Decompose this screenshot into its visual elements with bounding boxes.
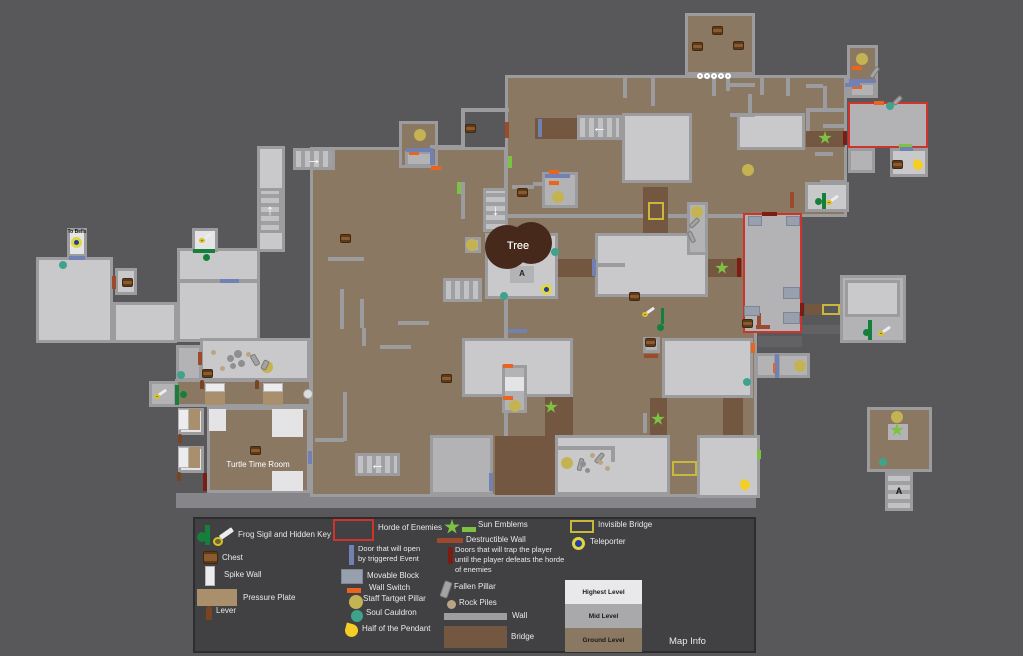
teleporter-icon (541, 284, 552, 295)
chest-icon (465, 124, 476, 133)
destructible-wall-icon (756, 325, 770, 329)
movable-block-icon (748, 216, 762, 226)
trap-door-icon (448, 547, 453, 564)
wall-segment (786, 75, 790, 96)
rock-pile-icon (227, 355, 234, 362)
map-room (758, 336, 802, 347)
wall-segment (651, 78, 655, 106)
event-door-icon (845, 83, 860, 87)
legend-label: Door that will open (358, 545, 420, 553)
legend-label: Chest (222, 554, 243, 562)
dungeon-map: →↑←↓←ATo BellsTreeAATurtle Time RoomTree… (0, 0, 1023, 656)
trap-door-icon (843, 131, 847, 145)
map-room (697, 435, 760, 498)
legend-label: Spike Wall (224, 571, 262, 579)
chest-icon (742, 319, 753, 328)
soul-cauldron-icon (59, 261, 67, 269)
wring-icon (704, 73, 710, 79)
map-room (805, 304, 822, 315)
soul-cauldron-icon (743, 378, 751, 386)
rock-pile-icon (220, 366, 225, 371)
pressure-plate-icon (189, 447, 200, 468)
wall-segment (820, 180, 845, 184)
soul-cauldron-icon (177, 371, 185, 379)
teleporter-icon (71, 237, 82, 248)
legend-label: Staff Tartget Pillar (363, 595, 426, 603)
wall-segment (823, 124, 845, 128)
sun-emblem-bar-icon (457, 182, 461, 194)
event-door-icon (538, 119, 542, 137)
trap-door-icon (800, 303, 804, 316)
map-room (209, 409, 226, 431)
wall-switch-icon (503, 364, 513, 368)
rock-pile-icon (234, 350, 242, 358)
legend-swatch (570, 520, 594, 533)
event-door-icon (430, 151, 434, 165)
event-door-icon (349, 545, 354, 565)
sun-emblem-bar-icon (757, 450, 761, 459)
staff-target-pillar-icon (466, 239, 478, 251)
wall-segment (623, 78, 627, 98)
wall-switch-icon (347, 588, 361, 593)
stairs-arrow-icon: ← (370, 457, 385, 472)
wall-segment (595, 263, 625, 267)
frog-sigil-bar-icon (661, 308, 664, 324)
soul-cauldron-icon (551, 248, 559, 256)
frog-sigil-bar-icon (822, 193, 826, 209)
staff-target-pillar-icon (349, 595, 363, 609)
legend-label: Rock Piles (459, 599, 497, 607)
rock-pile-icon (238, 360, 245, 367)
legend-level-mid: Mid Level (565, 604, 642, 628)
map-room (662, 338, 753, 398)
rock-pile-icon (447, 600, 456, 609)
stairs: ← (355, 453, 400, 476)
map-room (495, 436, 557, 495)
frog-sigil-icon (203, 254, 210, 261)
legend-label: Movable Block (367, 572, 419, 580)
key-ring (878, 331, 884, 336)
legend-label: until the player defeats the horde (455, 556, 564, 564)
wall-switch-icon (874, 101, 884, 105)
destructible-wall-icon (198, 352, 202, 365)
frog-sigil-icon (657, 324, 664, 331)
destructible-wall-icon (437, 538, 463, 543)
legend-label: by triggered Event (358, 555, 419, 563)
legend-label: Fallen Pillar (454, 583, 496, 591)
spike-wall-icon (178, 409, 189, 430)
stairs: → (293, 148, 335, 170)
event-door-icon (406, 148, 433, 152)
wall-segment (806, 112, 810, 131)
map-room (672, 461, 697, 476)
trap-door-icon (203, 473, 207, 491)
lever-icon (178, 434, 182, 443)
stairs: ↑ (258, 188, 282, 233)
map-room (505, 377, 524, 391)
key-icon (199, 233, 212, 243)
frog-sigil-bar-icon (205, 525, 210, 545)
destructible-wall-icon (505, 122, 509, 138)
wall-segment (360, 299, 364, 328)
wring-icon (725, 73, 731, 79)
wall-segment (643, 413, 647, 433)
wall-segment (815, 152, 833, 156)
map-room (430, 435, 493, 495)
wall-segment (730, 113, 755, 117)
wring-icon (711, 73, 717, 79)
key-icon (878, 326, 891, 336)
map-room (723, 398, 743, 435)
legend-label: Lever (216, 607, 236, 615)
key-ring (213, 537, 223, 546)
legend-swatch (333, 519, 374, 541)
legend-label: Teleporter (590, 538, 626, 546)
rock-pile-icon (230, 363, 236, 369)
map-room (845, 280, 900, 317)
stairs: ← (577, 115, 622, 140)
map-room (113, 302, 177, 343)
lever-icon (206, 606, 212, 620)
staff-target-pillar-icon (691, 206, 703, 218)
wall-segment (430, 145, 462, 149)
chest-icon (122, 278, 133, 287)
legend-label: of enemies (455, 566, 492, 574)
wall-segment (806, 108, 845, 112)
destructible-wall-icon (112, 276, 116, 289)
wall-switch-icon (503, 396, 513, 400)
legend-label: Destructible Wall (466, 536, 526, 544)
teleporter-icon (572, 537, 585, 550)
map-room (802, 325, 845, 334)
staff-target-pillar-icon (561, 457, 573, 469)
tree-label: Tree (507, 241, 529, 252)
key-ring (154, 394, 160, 399)
rock-pile-icon (590, 453, 595, 458)
map-room (177, 248, 260, 342)
wall-segment (823, 86, 827, 108)
chest-icon (712, 26, 723, 35)
map-room (272, 471, 303, 491)
map-label: Turtle Time Room (226, 461, 289, 469)
map-room (848, 148, 875, 173)
wall-segment (611, 450, 615, 462)
staff-target-pillar-icon (891, 411, 903, 423)
wall-segment (362, 328, 366, 346)
lever-icon (200, 380, 204, 389)
staff-target-pillar-icon (794, 360, 806, 372)
event-door-icon (508, 329, 527, 333)
destructible-wall-icon (644, 354, 658, 358)
sun-emblem-bar-icon (508, 156, 512, 168)
stairs-arrow-icon: ← (592, 120, 607, 135)
trap-door-icon (762, 212, 777, 216)
chest-icon (692, 42, 703, 51)
soul-cauldron-icon (351, 610, 363, 622)
staff-target-pillar-icon (742, 164, 754, 176)
legend-label: Soul Cauldron (366, 609, 417, 617)
soul-cauldron-icon (500, 292, 508, 300)
key-icon (826, 195, 839, 205)
wring-icon (718, 73, 724, 79)
movable-block-icon (783, 312, 800, 324)
wall-segment (380, 345, 411, 349)
sun-emblem-bar-icon (462, 527, 476, 532)
legend-label: Doors that will trap the player (455, 546, 552, 554)
event-door-icon (900, 147, 913, 151)
legend-label: Pressure Plate (243, 594, 295, 602)
stairs (443, 278, 482, 302)
stairs-arrow-icon: ↓ (492, 203, 500, 218)
event-door-icon (775, 354, 779, 378)
wall-segment (760, 75, 764, 95)
spike-wall-icon (178, 447, 189, 468)
event-door-icon (308, 451, 312, 464)
wall-segment (398, 321, 429, 325)
movable-block-icon (786, 216, 800, 226)
rock-pile-icon (211, 350, 216, 355)
rock-pile-icon (580, 461, 586, 467)
staff-target-pillar-icon (414, 129, 426, 141)
wall-segment (340, 289, 344, 329)
wall-segment (555, 446, 615, 450)
wall-switch-icon (549, 181, 559, 185)
destructible-wall-icon (790, 192, 794, 208)
chest-icon (203, 551, 218, 564)
frog-sigil-bar-icon (868, 320, 872, 340)
pressure-plate-icon (205, 391, 225, 405)
legend-label: Bridge (511, 633, 534, 641)
staff-target-pillar-icon (509, 400, 521, 412)
wall-segment (461, 108, 509, 112)
staff-target-pillar-icon (856, 53, 868, 65)
wall-switch-icon (852, 66, 862, 70)
map-room (272, 409, 303, 437)
rock-pile-icon (598, 460, 603, 465)
wring-icon (697, 73, 703, 79)
legend-label: Invisible Bridge (598, 521, 652, 529)
key-icon (213, 528, 235, 546)
wall-switch-icon (431, 166, 441, 170)
movable-block-icon (783, 287, 800, 299)
map-room (648, 202, 664, 220)
chest-icon (441, 374, 452, 383)
key-ring (642, 312, 648, 317)
map-label: A (519, 270, 525, 278)
map-room (622, 113, 692, 183)
legend-swatch (444, 613, 507, 620)
frog-sigil-icon (180, 391, 187, 398)
chest-icon (250, 446, 261, 455)
spike-wall-icon (263, 383, 283, 392)
pressure-plate-icon (189, 409, 200, 430)
pressure-plate-icon (263, 391, 283, 405)
legend-label: Frog Sigil and Hidden Key (238, 531, 331, 539)
key-ring (826, 200, 832, 205)
wall-segment (343, 392, 347, 441)
legend-label: Wall (512, 612, 527, 620)
wall-segment (730, 83, 755, 87)
legend-label: Map Info (669, 637, 706, 647)
wall-segment (748, 94, 752, 113)
map-room (545, 397, 573, 439)
chest-icon (645, 338, 656, 347)
wall-segment (533, 182, 543, 186)
frog-sigil-bar-icon (175, 385, 179, 405)
movable-block-icon (341, 569, 363, 584)
stairs-arrow-icon: ↑ (266, 203, 274, 218)
legend-level-ground: Ground Level (565, 628, 642, 652)
map-room (737, 113, 805, 150)
map-room (175, 379, 312, 407)
legend-label: Sun Emblems (478, 521, 528, 529)
event-door-icon (592, 259, 596, 276)
wall-segment (177, 279, 260, 283)
movable-block-icon (744, 306, 760, 316)
chest-icon (733, 41, 744, 50)
event-door-icon (545, 174, 570, 178)
chest-icon (202, 369, 213, 378)
rock-pile-icon (303, 389, 313, 399)
key-icon (154, 389, 167, 399)
rock-pile-icon (585, 468, 590, 473)
stairs-arrow-icon: → (307, 152, 322, 167)
map-label: To Bells (67, 230, 86, 235)
event-door-icon (220, 279, 239, 283)
event-door-icon (489, 473, 493, 491)
map-label: A (896, 488, 902, 496)
lever-icon (177, 472, 181, 481)
key-icon (642, 307, 655, 317)
legend-label: Half of the Pendant (362, 625, 431, 633)
map-room (822, 304, 840, 315)
lever-icon (255, 380, 259, 389)
frog-sigil-icon (815, 198, 822, 205)
rock-pile-icon (605, 466, 610, 471)
trap-door-icon (737, 258, 741, 277)
soul-cauldron-icon (879, 458, 887, 466)
legend-label: Wall Switch (369, 584, 410, 592)
legend-swatch (444, 626, 507, 648)
wall-segment (328, 257, 364, 261)
legend-label: Horde of Enemies (378, 524, 442, 532)
event-door-icon (69, 256, 85, 260)
map-room (558, 259, 595, 277)
frog-sigil-bar-icon (193, 249, 215, 253)
wall-segment (712, 78, 716, 96)
map-room (36, 257, 113, 343)
wall-segment (315, 438, 344, 442)
chest-icon (892, 160, 903, 169)
wall-switch-icon (751, 343, 755, 353)
rock-pile-icon (246, 352, 251, 357)
wall-segment (806, 84, 823, 88)
spike-wall-icon (205, 383, 225, 392)
wall-segment (461, 182, 465, 219)
legend-level-highest: Highest Level (565, 580, 642, 604)
pressure-plate-icon (197, 589, 237, 606)
staff-target-pillar-icon (552, 191, 564, 203)
chest-icon (517, 188, 528, 197)
chest-icon (629, 292, 640, 301)
key-ring (199, 238, 205, 243)
chest-icon (340, 234, 351, 243)
spike-wall-icon (205, 566, 215, 586)
